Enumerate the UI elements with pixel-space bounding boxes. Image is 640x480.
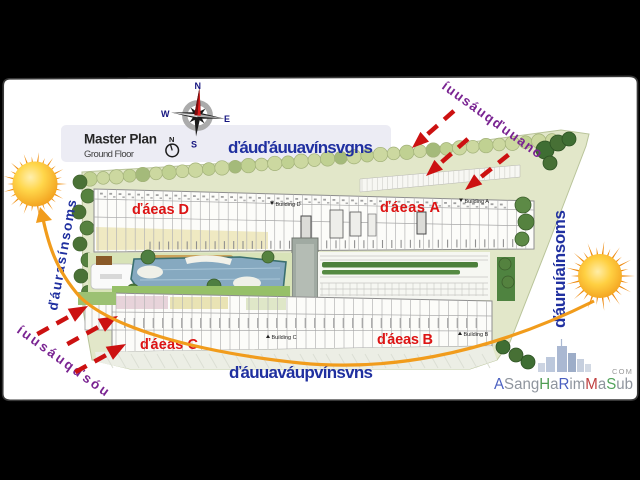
svg-text:N: N xyxy=(169,135,174,144)
svg-text:ďáeas A: ďáeas A xyxy=(380,200,441,216)
svg-text:E: E xyxy=(224,114,230,124)
svg-text:Master Plan: Master Plan xyxy=(84,132,157,147)
svg-text:ďáeas B: ďáeas B xyxy=(377,332,433,348)
svg-text:W: W xyxy=(161,109,170,119)
svg-text:N: N xyxy=(195,81,202,91)
svg-text:S: S xyxy=(191,140,197,150)
svg-text:Ground Floor: Ground Floor xyxy=(84,149,134,160)
svg-text:Building A: Building A xyxy=(465,199,490,205)
svg-text:ASangHaRimMaSub: ASangHaRimMaSub xyxy=(494,376,633,393)
svg-text:ďáuruíaínsoms: ďáuruíaínsoms xyxy=(550,210,569,328)
svg-text:Building B: Building B xyxy=(464,332,489,338)
svg-text:COM: COM xyxy=(612,367,633,376)
svg-text:ďáuďáuuavínsvgns: ďáuďáuuavínsvgns xyxy=(228,138,373,157)
svg-text:Building C: Building C xyxy=(272,335,297,341)
svg-text:Building D: Building D xyxy=(276,202,301,208)
svg-text:ďáeas D: ďáeas D xyxy=(132,202,189,218)
